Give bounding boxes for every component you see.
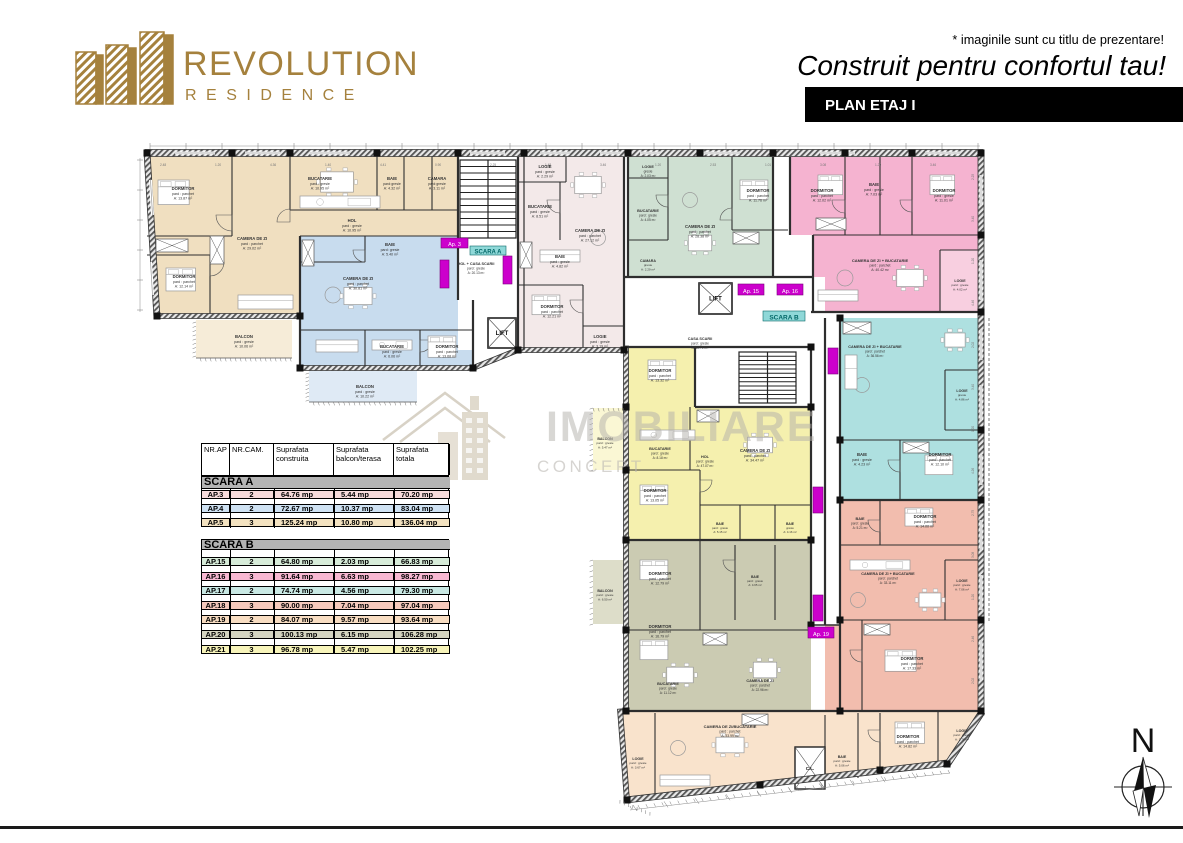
svg-text:CONCEPT: CONCEPT [537, 457, 645, 476]
svg-text:DORMITORpard : parchetA: 12.79: DORMITORpard : parchetA: 12.79 m² [649, 571, 672, 586]
svg-text:BALCONpard : gresieA: 6.50 m²: BALCONpard : gresieA: 6.50 m² [597, 589, 614, 601]
svg-text:2.75: 2.75 [971, 510, 975, 516]
svg-text:SCARA A: SCARA A [475, 250, 503, 256]
svg-text:2.48: 2.48 [160, 163, 166, 167]
svg-text:IMOBILIARE: IMOBILIARE [546, 403, 817, 451]
svg-text:Ap. 15: Ap. 15 [743, 289, 759, 295]
svg-text:DORMITORpard : parchetA: 17.33: DORMITORpard : parchetA: 17.33 m² [901, 656, 924, 671]
svg-text:DORMITORpard : parchetA: 13.68: DORMITORpard : parchetA: 13.68 m² [436, 344, 459, 359]
svg-text:DORMITORpard : parchetA: 13.32: DORMITORpard : parchetA: 13.32 m² [649, 368, 672, 383]
svg-text:DORMITORpard : gresieA: 11.01: DORMITORpard : gresieA: 11.01 m² [933, 188, 956, 203]
svg-text:2.02: 2.02 [971, 678, 975, 684]
svg-text:3.46: 3.46 [930, 163, 936, 167]
svg-text:N: N [1131, 722, 1156, 760]
svg-text:1.01: 1.01 [765, 163, 771, 167]
svg-text:Ap. 16: Ap. 16 [782, 289, 798, 295]
svg-text:DORMITORpard : parchetA: 14.82: DORMITORpard : parchetA: 14.82 m² [897, 734, 920, 749]
svg-text:2.25: 2.25 [971, 174, 975, 180]
svg-text:BUCATARIEpard : gresieA: 11.12: BUCATARIEpard : gresieA: 11.12 m² [657, 682, 679, 695]
svg-text:Ap. 19: Ap. 19 [813, 632, 829, 638]
svg-text:3.08: 3.08 [971, 552, 975, 558]
svg-text:2.25: 2.25 [490, 163, 496, 167]
svg-text:0.90: 0.90 [435, 163, 441, 167]
svg-text:1.20: 1.20 [971, 258, 975, 264]
svg-text:3.08: 3.08 [820, 163, 826, 167]
svg-text:DORMITORpard : parchetA: 13.05: DORMITORpard : parchetA: 13.05 m² [644, 488, 667, 503]
svg-text:4.41: 4.41 [380, 163, 386, 167]
svg-text:BALCONpard : gresieA: 10.22 m²: BALCONpard : gresieA: 10.22 m² [355, 384, 375, 399]
svg-text:1.20: 1.20 [655, 163, 661, 167]
svg-text:1.20: 1.20 [215, 163, 221, 167]
svg-text:2.02: 2.02 [971, 342, 975, 348]
svg-text:1.20: 1.20 [971, 594, 975, 600]
svg-text:DORMITORpard : parchetA: 16.79: DORMITORpard : parchetA: 16.79 m² [649, 624, 672, 639]
svg-text:CAMARApard:gresieA: 3.11 m²: CAMARApard:gresieA: 3.11 m² [428, 176, 447, 191]
svg-text:DORMITORpard : parchetA: 12.10: DORMITORpard : parchetA: 12.10 m² [929, 452, 952, 467]
svg-text:Ap. 3: Ap. 3 [448, 242, 461, 248]
svg-text:BUCATARIEpard : gresieA: 10.95: BUCATARIEpard : gresieA: 10.95 m² [308, 176, 332, 191]
svg-text:3.46: 3.46 [600, 163, 606, 167]
svg-text:3.40: 3.40 [971, 216, 975, 222]
svg-text:4.46: 4.46 [971, 300, 975, 306]
svg-text:C.L.: C.L. [806, 766, 815, 771]
svg-text:2.46: 2.46 [971, 636, 975, 642]
svg-text:DORMITORpard : parchetA: 12.02: DORMITORpard : parchetA: 12.02 m² [811, 188, 834, 203]
svg-text:1.20: 1.20 [875, 163, 881, 167]
svg-text:DORMITORpard : parchetA: 12.14: DORMITORpard : parchetA: 12.14 m² [173, 274, 196, 289]
svg-text:2.53: 2.53 [710, 163, 716, 167]
svg-text:SCARA B: SCARA B [769, 315, 799, 322]
svg-text:1.20: 1.20 [971, 426, 975, 432]
svg-text:1.40: 1.40 [325, 163, 331, 167]
svg-text:LIFT: LIFT [709, 297, 722, 303]
svg-text:4.36: 4.36 [270, 163, 276, 167]
svg-text:4.26: 4.26 [971, 468, 975, 474]
svg-text:BALCONpard : gresieA: 10.06 m²: BALCONpard : gresieA: 10.06 m² [234, 334, 254, 349]
svg-text:DORMITORpard : parchetA: 13.87: DORMITORpard : parchetA: 13.87 m² [172, 186, 195, 201]
svg-text:DORMITORpard : parchetA: 14.00: DORMITORpard : parchetA: 14.00 m² [914, 514, 937, 529]
svg-text:DORMITORpard : parchetA: 12.21: DORMITORpard : parchetA: 12.21 m² [541, 304, 564, 319]
svg-text:DORMITORpard : parchetA: 11.76: DORMITORpard : parchetA: 11.76 m² [747, 188, 770, 203]
svg-text:LIFT: LIFT [496, 331, 509, 337]
svg-text:3.40: 3.40 [971, 384, 975, 390]
